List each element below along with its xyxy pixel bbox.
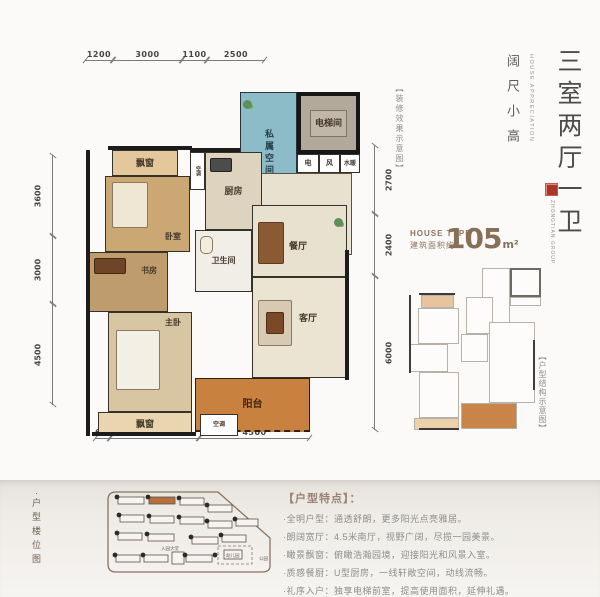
decor-note-vertical: 【装修效果示意图】 [394,84,405,174]
room-label: 厨房 [224,187,242,196]
room-label: 飘窗 [136,159,154,168]
room-label: 飘窗 [136,420,154,429]
wall [108,146,192,150]
room-ac-bottom: 空调 [200,414,238,436]
feature-line: ·朗阔宽厅：4.5米南厅，视野广阔，尽揽一园美景。 [283,528,515,546]
room-shaft-vent: 风 [319,154,340,173]
dim-label: 1200 [85,50,113,59]
keyplan-elevator [510,268,541,297]
brand-name-vertical: ZHONGTIAN GROUP [549,200,555,264]
keyplan-note-vertical: 【户型结构示意图】 [537,352,548,433]
siteplan-map: 入园大堂 幼儿园 公园 [102,488,278,578]
room-label: 电梯间 [310,110,347,137]
room-label: 私属空间 [264,129,273,177]
dim-bottom-2: 3600 [110,438,199,439]
keyplan-master [419,372,459,418]
wall [86,150,90,436]
floorplan-page: 1200 3000 1100 2500 3600 3000 4500 2700 … [0,0,600,597]
keyplan-balcony [461,403,517,429]
dim-top-1: 1200 [85,60,113,61]
keyplan-wall [533,340,535,390]
room-bay-window-top: 飘窗 [112,150,178,176]
keyplan-study [409,344,448,372]
dim-label: 3000 [113,50,182,59]
room-label: 电 [305,160,312,167]
keyplan-wall [419,293,455,295]
room-label: 书房 [141,267,157,275]
dim-label: 2400 [385,234,394,256]
keyplan-shafts [510,297,541,306]
plant-icon [243,100,252,109]
room-label: 客厅 [299,314,317,323]
features-title: 【户型特点】： [283,490,515,506]
keyplan-bath [461,334,488,362]
plant-icon [334,218,343,227]
room-label: 卫生间 [212,257,236,265]
keyplan-bedroom [418,308,459,344]
dim-right-1: 2700 [374,145,375,214]
dim-right-3: 6000 [374,276,375,430]
feature-line: ·质感餐厨：U型厨房，一线轩敞空间，动线流畅。 [283,564,515,582]
dim-label: 1100 [182,50,207,59]
keyplan-living [489,322,535,403]
desk-icon [94,258,126,274]
feature-line: ·全明户型：通透舒朗，更多阳光点亮雅居。 [283,510,515,528]
dim-label: 2700 [385,168,394,190]
wall [92,432,196,436]
room-label: 主卧 [165,319,181,327]
unit-title-vertical: 三室两厅一卫 [550,48,586,240]
master-bed-icon [116,330,160,390]
dim-left-2: 3000 [52,236,53,304]
toilet-icon [200,236,213,254]
room-shaft-water: 水暖 [340,154,360,173]
siteplan-bullet: · [30,488,43,498]
dim-top-4: 2500 [207,60,265,61]
room-label: 空调 [213,422,225,428]
feature-line: ·瞰景飘窗：俯瞰浩瀚园境，迎接阳光和风景入室。 [283,546,515,564]
room-label: 餐厅 [289,242,307,251]
room-label: 阳台 [243,400,263,410]
area-value-block: 105 m² [446,222,519,255]
wall [345,250,349,380]
keyplan-bay-top [421,295,454,308]
dim-label: 3000 [34,259,43,281]
stove-icon [210,158,232,172]
wall [190,148,240,152]
room-label: 卧室 [165,233,181,241]
keyplan-wall [419,428,459,430]
park-label: 公园 [259,556,268,562]
coffee-table-icon [266,312,284,334]
unit-subtitle-vertical: 阔尺小高 [502,54,521,154]
feature-line: ·礼序入户：独享电梯前室，提高使用面积，延伸礼遇。 [283,582,515,597]
dim-label: 2500 [207,50,265,59]
bed-icon [112,182,148,228]
room-elevator: 电梯间 [297,92,360,154]
room-label: 风 [326,160,333,167]
dim-label: 4500 [34,343,43,365]
unit-subtitle-en: HOUSE APPRECIATION [528,54,534,142]
dining-table-icon [258,222,284,264]
room-ac-top: 空调 [190,152,205,190]
dim-label: 6000 [385,342,394,364]
bottom-strip: · 户型楼位图 入园大堂 [0,480,600,597]
siteplan-title-vertical: 户型楼位图 [30,498,43,568]
area-unit: m² [502,238,518,251]
dim-label: 3600 [34,184,43,206]
room-label: 水暖 [344,161,356,167]
dim-left-3: 4500 [52,304,53,405]
features-panel: 【户型特点】： ·全明户型：通透舒朗，更多阳光点亮雅居。 ·朗阔宽厅：4.5米南… [283,490,515,597]
dim-bottom-3: 4500 [199,438,310,439]
brand-seal-icon [545,183,558,196]
dim-top-2: 3000 [113,60,182,61]
room-shaft-electric: 电 [297,154,319,173]
lobby-label: 入园大堂 [161,545,179,552]
siteplan-title-block: · 户型楼位图 [30,488,43,568]
dim-right-2: 2400 [374,214,375,276]
area-value: 105 [446,222,501,255]
kindergarten-label: 幼儿园 [226,552,240,559]
dim-top-3: 1100 [182,60,207,61]
dim-left-1: 3600 [52,155,53,236]
room-label: 空调 [195,166,200,176]
keyplan-wall [409,295,411,373]
